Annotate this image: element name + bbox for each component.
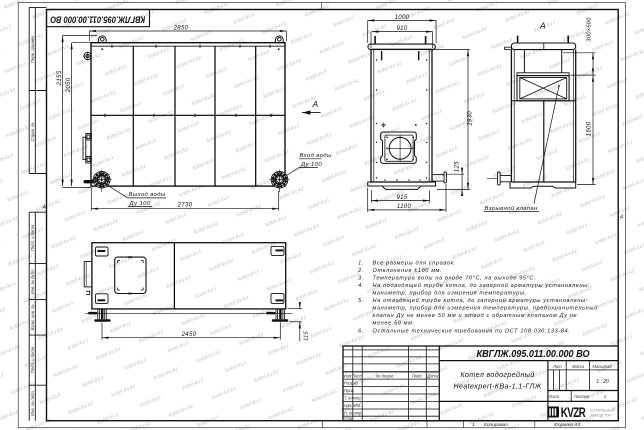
svg-text:На отводящей трубе котла, до з: На отводящей трубе котла, до запорной ар… [373,297,588,304]
svg-text:KVZR: KVZR [561,405,586,420]
svg-text:1 : 20: 1 : 20 [596,379,609,385]
svg-text:2.: 2. [357,268,364,274]
svg-text:Взам. инв. №: Взам. инв. № [30,304,35,330]
svg-text:менее 50 мм.: менее 50 мм. [373,321,415,327]
svg-text:Отклонения ±100 мм.: Отклонения ±100 мм. [373,268,443,274]
svg-text:1.: 1. [358,260,364,266]
svg-text:На подводящей трубе котла, до: На подводящей трубе котла, до запорной а… [373,282,591,289]
svg-text:Дата: Дата [426,373,439,378]
svg-text:Н. контр.: Н. контр. [344,410,362,415]
svg-text:125: 125 [454,161,461,172]
svg-text:ЗАВОД РЗР: ЗАВОД РЗР [590,412,612,417]
svg-text:Подп.: Подп. [412,373,423,378]
svg-text:№ докум.: № докум. [376,373,394,378]
svg-text:2450: 2450 [181,331,197,338]
svg-text:Heatexpert-КВа-1,1-ГЛЖ: Heatexpert-КВа-1,1-ГЛЖ [453,381,541,390]
svg-text:Перв. примен.: Перв. примен. [30,35,35,63]
svg-text:Взрывной клапан: Взрывной клапан [485,205,539,212]
svg-text:2155: 2155 [56,70,63,86]
svg-text:Нач.отд.: Нач.отд. [344,403,361,408]
svg-text:Копировал: Копировал [484,422,508,428]
svg-text:Температура воды на входе 70°С: Температура воды на входе 70°С, на выход… [373,275,537,281]
svg-text:КВГЛЖ.095.011.00.000 ВО: КВГЛЖ.095.011.00.000 ВО [477,349,590,360]
svg-text:915: 915 [396,194,407,201]
svg-text:клапан Ду не менее 50 мм и отв: клапан Ду не менее 50 мм и отвод с обрат… [373,313,578,319]
svg-text:Все размеры для справок.: Все размеры для справок. [373,260,456,266]
svg-text:Масштаб: Масштаб [592,364,612,369]
svg-text:Лист: Лист [548,394,560,399]
svg-text:Вход воды: Вход воды [300,153,332,159]
svg-text:1930: 1930 [467,111,474,126]
svg-text:Инв. № подл.: Инв. № подл. [30,390,35,416]
svg-text:Формат А3: Формат А3 [554,422,581,428]
svg-text:1000: 1000 [395,14,410,21]
svg-text:А: А [312,99,319,109]
svg-text:манометр, прибор для измерения: манометр, прибор для измерения температу… [373,305,598,312]
svg-text:1: 1 [604,394,606,399]
svg-text:манометр, прибор для измрения: манометр, прибор для измрения температур… [373,291,527,297]
svg-text:Подп. и дата: Подп. и дата [30,224,35,251]
svg-text:Пров.: Пров. [344,388,355,393]
svg-text:5.: 5. [358,298,364,304]
svg-text:Остальные технические требован: Остальные технические требования по ОСТ … [373,328,571,334]
svg-text:Справ. №: Справ. № [30,122,35,141]
svg-text:Ду 100: Ду 100 [129,201,151,207]
svg-text:Листов: Листов [573,394,590,399]
svg-text:4.: 4. [358,283,364,289]
svg-text:Подп. и дата: Подп. и дата [30,346,35,373]
svg-text:2050: 2050 [65,77,72,93]
svg-text:Инв. № дубл.: Инв. № дубл. [30,269,35,295]
svg-text:Лист: Лист [351,373,363,378]
svg-text:300×500: 300×500 [586,17,592,42]
svg-text:1: 1 [472,422,475,428]
svg-text:6.: 6. [358,328,364,334]
svg-text:Котел водогрейный: Котел водогрейный [460,370,534,379]
svg-text:Т. контр.: Т. контр. [344,396,362,401]
svg-text:Лит.: Лит. [552,364,563,369]
svg-text:Утв.: Утв. [344,416,353,421]
svg-text:А: А [539,21,546,31]
svg-text:1100: 1100 [397,203,412,210]
svg-text:2730: 2730 [177,202,193,209]
svg-text:А: А [42,205,47,211]
svg-text:Разраб.: Разраб. [344,381,359,386]
svg-text:Масса: Масса [572,364,585,369]
svg-text:1600: 1600 [585,121,592,136]
svg-text:2850: 2850 [173,24,189,31]
svg-text:А: А [619,215,624,221]
svg-text:Выход воды: Выход воды [129,192,166,198]
svg-text:КВГЛЖ.095.011.00.000 ВО: КВГЛЖ.095.011.00.000 ВО [50,13,145,24]
svg-text:910: 910 [396,25,407,32]
svg-text:Изм: Изм [344,373,352,378]
svg-text:115: 115 [304,330,310,341]
svg-text:3.: 3. [358,275,364,281]
